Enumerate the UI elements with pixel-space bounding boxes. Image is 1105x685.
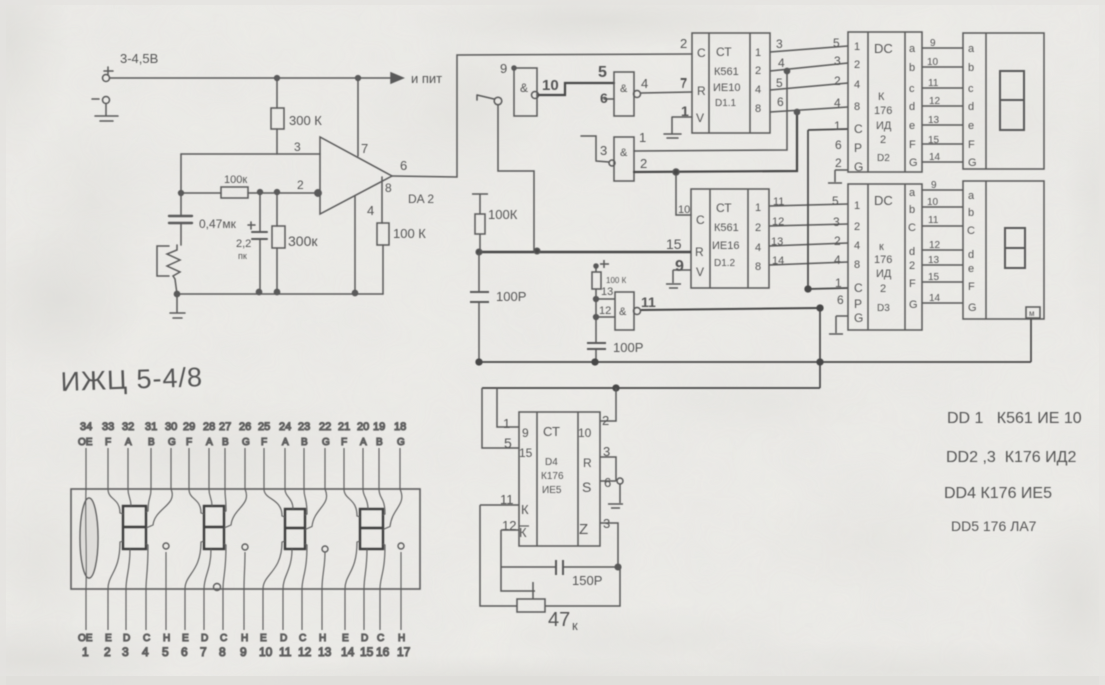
svg-text:15: 15	[928, 135, 940, 146]
svg-text:2: 2	[640, 156, 647, 171]
svg-text:1: 1	[681, 103, 689, 119]
svg-text:3: 3	[603, 444, 610, 459]
svg-text:11: 11	[928, 78, 939, 89]
svg-text:2: 2	[755, 222, 761, 234]
svg-text:G: G	[854, 160, 863, 174]
svg-text:1: 1	[503, 416, 510, 431]
svg-text:8: 8	[755, 261, 761, 273]
svg-text:&: &	[620, 83, 628, 95]
svg-text:176: 176	[874, 254, 892, 266]
svg-text:c: c	[909, 83, 915, 95]
svg-text:a: a	[968, 43, 975, 55]
svg-text:3: 3	[122, 645, 129, 659]
svg-text:34: 34	[80, 421, 92, 433]
svg-text:СТ: СТ	[716, 201, 732, 215]
svg-text:С: С	[220, 633, 227, 644]
svg-text:6: 6	[837, 293, 844, 307]
svg-text:ИД: ИД	[876, 268, 892, 280]
svg-text:2: 2	[755, 65, 761, 77]
svg-text:4: 4	[834, 96, 841, 110]
svg-text:17: 17	[397, 645, 411, 659]
svg-text:176: 176	[874, 105, 892, 117]
svg-text:Н: Н	[241, 633, 248, 644]
svg-text:300к: 300к	[288, 233, 318, 249]
svg-text:F: F	[968, 281, 975, 293]
svg-text:14: 14	[929, 293, 941, 304]
svg-text:8: 8	[219, 645, 226, 659]
svg-text:18: 18	[394, 421, 406, 433]
svg-text:ИЖЦ 5-4/8: ИЖЦ 5-4/8	[60, 362, 203, 397]
svg-text:К561: К561	[714, 66, 739, 78]
svg-text:4: 4	[142, 645, 149, 659]
svg-text:47: 47	[548, 609, 570, 631]
svg-text:ИЕ10: ИЕ10	[713, 82, 740, 94]
svg-text:a: a	[968, 190, 975, 202]
svg-text:5: 5	[162, 645, 169, 659]
svg-text:F: F	[968, 139, 975, 151]
svg-text:12: 12	[502, 518, 516, 533]
svg-text:3-4,5В: 3-4,5В	[120, 51, 158, 66]
svg-text:9: 9	[675, 258, 684, 275]
svg-text:5: 5	[504, 435, 512, 451]
svg-text:F: F	[341, 437, 347, 448]
svg-text:2: 2	[854, 221, 860, 233]
svg-text:D: D	[201, 633, 208, 644]
svg-text:G: G	[397, 437, 405, 448]
svg-text:к: к	[572, 618, 578, 633]
svg-text:13: 13	[928, 115, 940, 126]
svg-text:100 К: 100 К	[606, 276, 627, 285]
svg-text:5: 5	[598, 64, 607, 81]
svg-text:G: G	[242, 437, 250, 448]
svg-text:С: С	[143, 633, 150, 644]
svg-text:31: 31	[145, 421, 157, 433]
svg-text:29: 29	[183, 421, 195, 433]
svg-text:A: A	[282, 437, 289, 448]
svg-text:2: 2	[680, 36, 687, 51]
svg-text:B: B	[376, 437, 383, 448]
svg-text:C: C	[697, 46, 706, 60]
svg-text:13: 13	[318, 645, 332, 659]
svg-text:F: F	[909, 278, 916, 290]
svg-text:a: a	[909, 187, 916, 199]
svg-text:15: 15	[666, 236, 682, 252]
svg-text:30: 30	[165, 421, 177, 433]
svg-text:5: 5	[832, 194, 839, 208]
svg-text:7: 7	[680, 76, 687, 91]
svg-text:G: G	[322, 437, 330, 448]
svg-text:ИЕ5: ИЕ5	[542, 485, 562, 496]
svg-text:4: 4	[755, 242, 761, 254]
svg-text:4: 4	[834, 253, 841, 267]
svg-text:4: 4	[367, 203, 374, 218]
svg-text:3: 3	[294, 140, 301, 154]
svg-text:P: P	[854, 141, 862, 155]
svg-text:10: 10	[678, 204, 690, 216]
svg-text:3: 3	[600, 143, 607, 158]
svg-text:100 К: 100 К	[393, 226, 426, 241]
svg-text:1: 1	[854, 41, 860, 53]
svg-text:Е: Е	[182, 633, 189, 644]
svg-text:F: F	[186, 437, 192, 448]
svg-text:D: D	[123, 633, 130, 644]
svg-text:R: R	[697, 84, 706, 98]
svg-text:Н: Н	[163, 633, 170, 644]
svg-text:1: 1	[854, 200, 860, 212]
svg-text:11: 11	[928, 215, 939, 226]
svg-text:11: 11	[500, 492, 514, 507]
svg-text:G: G	[968, 157, 977, 169]
svg-text:1: 1	[755, 47, 761, 59]
svg-text:F: F	[261, 437, 267, 448]
svg-text:7: 7	[361, 141, 368, 156]
svg-text:6: 6	[604, 475, 611, 490]
svg-text:К176: К176	[541, 471, 564, 482]
svg-text:G: G	[909, 157, 918, 169]
svg-text:и пит: и пит	[411, 71, 442, 86]
svg-text:4: 4	[778, 56, 785, 70]
svg-text:DC: DC	[874, 41, 893, 56]
svg-text:C: C	[967, 225, 975, 237]
svg-text:F: F	[909, 139, 916, 151]
svg-text:R: R	[695, 245, 704, 259]
svg-text:G: G	[168, 437, 176, 448]
svg-text:D2: D2	[877, 153, 890, 164]
svg-text:8: 8	[854, 101, 860, 113]
svg-text:ОЕ: ОЕ	[78, 437, 93, 448]
svg-text:12: 12	[929, 240, 941, 251]
svg-text:2: 2	[854, 59, 860, 71]
svg-text:К: К	[521, 502, 529, 517]
svg-text:4: 4	[854, 240, 860, 252]
svg-text:Z: Z	[579, 521, 588, 538]
svg-text:C: C	[696, 213, 705, 227]
svg-text:8: 8	[755, 103, 761, 115]
svg-text:d: d	[909, 101, 915, 113]
svg-text:D1.2: D1.2	[714, 258, 736, 269]
svg-text:9: 9	[522, 426, 529, 440]
svg-text:16: 16	[376, 645, 390, 659]
svg-text:10: 10	[542, 77, 559, 94]
svg-text:B: B	[148, 437, 155, 448]
svg-text:DA 2: DA 2	[408, 192, 434, 206]
svg-text:9: 9	[500, 61, 507, 76]
svg-text:1: 1	[834, 119, 841, 133]
svg-text:28: 28	[203, 421, 215, 433]
svg-text:DD4 К176 ИЕ5: DD4 К176 ИЕ5	[944, 485, 1052, 502]
svg-text:13: 13	[771, 236, 783, 248]
svg-text:2: 2	[880, 134, 886, 146]
svg-text:300 К: 300 К	[289, 113, 322, 128]
svg-text:G: G	[968, 302, 977, 314]
svg-text:V: V	[696, 111, 704, 125]
svg-text:d: d	[968, 249, 974, 261]
svg-text:D: D	[280, 633, 287, 644]
svg-text:F: F	[105, 437, 111, 448]
svg-text:2: 2	[835, 156, 842, 170]
svg-text:5: 5	[833, 36, 840, 50]
svg-text:6: 6	[600, 90, 608, 106]
svg-text:Н: Н	[398, 633, 405, 644]
svg-text:13: 13	[601, 286, 613, 298]
svg-text:11: 11	[279, 645, 292, 659]
svg-text:150Р: 150Р	[572, 573, 602, 588]
svg-text:DD 1 К561 ИЕ 10: DD 1 К561 ИЕ 10	[947, 410, 1082, 427]
svg-text:10: 10	[927, 57, 939, 68]
svg-text:10: 10	[578, 426, 592, 440]
svg-text:7: 7	[200, 645, 207, 659]
svg-text:13: 13	[928, 255, 940, 266]
svg-text:8: 8	[385, 181, 392, 195]
svg-text:ИЕ16: ИЕ16	[712, 240, 739, 252]
svg-text:C: C	[908, 222, 916, 234]
svg-text:14: 14	[341, 645, 355, 659]
svg-text:25: 25	[258, 421, 270, 433]
svg-text:B: B	[222, 437, 229, 448]
svg-text:9: 9	[240, 645, 247, 659]
svg-text:0,47мк: 0,47мк	[199, 217, 237, 231]
svg-text:12: 12	[298, 645, 312, 659]
svg-text:b: b	[968, 62, 974, 74]
svg-text:С: С	[299, 633, 306, 644]
svg-text:2: 2	[834, 74, 841, 88]
svg-text:27: 27	[219, 421, 231, 433]
svg-text:2: 2	[602, 413, 609, 428]
svg-text:A: A	[206, 437, 213, 448]
svg-text:Е: Е	[105, 633, 112, 644]
svg-text:3: 3	[776, 37, 783, 51]
svg-text:2: 2	[104, 645, 111, 659]
svg-text:15: 15	[360, 645, 374, 659]
svg-text:e: e	[909, 120, 915, 132]
svg-text:15: 15	[928, 272, 940, 283]
svg-text:G: G	[909, 299, 918, 311]
svg-text:D: D	[361, 633, 368, 644]
svg-text:C: C	[854, 122, 863, 136]
svg-text:e: e	[968, 120, 974, 132]
svg-text:33: 33	[102, 421, 114, 433]
svg-text:A: A	[125, 437, 132, 448]
svg-text:2,2: 2,2	[236, 238, 251, 250]
svg-text:1: 1	[755, 202, 761, 214]
svg-text:С: С	[377, 633, 384, 644]
svg-text:2: 2	[297, 178, 304, 192]
svg-text:d: d	[909, 246, 915, 258]
svg-text:B: B	[301, 437, 308, 448]
svg-text:G: G	[854, 311, 863, 325]
svg-text:100Р: 100Р	[613, 340, 643, 355]
svg-text:8: 8	[854, 259, 860, 271]
svg-text:S: S	[582, 479, 591, 495]
svg-text:2: 2	[909, 260, 915, 272]
svg-text:&: &	[520, 81, 528, 95]
svg-text:22: 22	[319, 421, 331, 433]
svg-text:b: b	[909, 204, 915, 216]
svg-text:ОЕ: ОЕ	[78, 633, 93, 644]
svg-text:6: 6	[777, 95, 784, 109]
svg-text:К561: К561	[714, 222, 739, 234]
svg-text:32: 32	[122, 421, 134, 433]
svg-text:100Р: 100Р	[496, 289, 526, 304]
svg-text:10: 10	[927, 197, 939, 208]
svg-text:К: К	[519, 525, 527, 540]
svg-text:&: &	[620, 147, 628, 159]
svg-text:R: R	[583, 456, 592, 470]
svg-text:1: 1	[639, 130, 646, 145]
svg-text:11: 11	[641, 294, 656, 310]
svg-text:6: 6	[835, 138, 842, 152]
svg-text:V: V	[696, 265, 704, 279]
svg-text:Е: Е	[342, 633, 349, 644]
svg-text:4: 4	[755, 84, 761, 96]
svg-text:2: 2	[880, 283, 886, 295]
svg-text:a: a	[909, 43, 916, 55]
svg-text:12: 12	[929, 96, 941, 107]
svg-text:23: 23	[298, 421, 310, 433]
svg-text:СТ: СТ	[716, 45, 732, 59]
svg-text:&: &	[619, 306, 627, 318]
svg-text:м: м	[1029, 309, 1035, 318]
svg-text:D3: D3	[877, 303, 890, 314]
svg-text:b: b	[909, 62, 915, 74]
svg-text:A: A	[360, 437, 367, 448]
svg-text:12: 12	[599, 305, 611, 317]
svg-text:5: 5	[776, 76, 783, 90]
svg-text:20: 20	[357, 421, 369, 433]
svg-text:9: 9	[931, 180, 937, 191]
svg-text:b: b	[968, 207, 974, 219]
svg-text:12: 12	[772, 216, 784, 228]
svg-text:3: 3	[834, 54, 841, 68]
svg-text:11: 11	[773, 196, 784, 208]
svg-text:DC: DC	[874, 193, 893, 208]
svg-text:к: к	[879, 241, 884, 253]
svg-text:3: 3	[603, 516, 610, 531]
svg-text:4: 4	[854, 79, 860, 91]
svg-text:14: 14	[929, 152, 941, 163]
svg-text:СТ: СТ	[543, 424, 560, 439]
svg-text:D4: D4	[545, 457, 558, 468]
svg-text:К: К	[878, 91, 885, 103]
svg-text:21: 21	[338, 421, 350, 433]
svg-text:10: 10	[259, 645, 273, 659]
svg-text:DD2 ,3 К176 ИД2: DD2 ,3 К176 ИД2	[946, 449, 1076, 466]
svg-text:пк: пк	[238, 251, 247, 261]
svg-text:4: 4	[641, 76, 648, 91]
svg-text:e: e	[968, 263, 974, 275]
svg-text:6: 6	[181, 645, 188, 659]
svg-text:c: c	[968, 83, 974, 95]
svg-text:1: 1	[835, 276, 842, 290]
svg-text:DD5 176 ЛА7: DD5 176 ЛА7	[951, 518, 1037, 534]
svg-text:P: P	[854, 297, 862, 311]
svg-text:Е: Е	[260, 633, 267, 644]
svg-text:9: 9	[930, 38, 936, 49]
svg-text:3: 3	[833, 215, 840, 229]
svg-text:26: 26	[239, 421, 251, 433]
svg-text:19: 19	[373, 421, 385, 433]
svg-text:100к: 100к	[224, 174, 247, 186]
svg-text:24: 24	[279, 421, 291, 433]
svg-text:1: 1	[82, 645, 89, 659]
svg-text:14: 14	[772, 255, 784, 267]
svg-text:6: 6	[400, 158, 407, 173]
svg-text:d: d	[968, 101, 974, 113]
svg-text:C: C	[854, 281, 863, 295]
svg-text:2: 2	[834, 234, 841, 248]
svg-text:100К: 100К	[488, 207, 518, 222]
svg-text:Н: Н	[319, 633, 326, 644]
svg-text:D1.1: D1.1	[715, 98, 737, 109]
svg-text:ИД: ИД	[876, 120, 892, 132]
svg-text:15: 15	[519, 446, 533, 460]
